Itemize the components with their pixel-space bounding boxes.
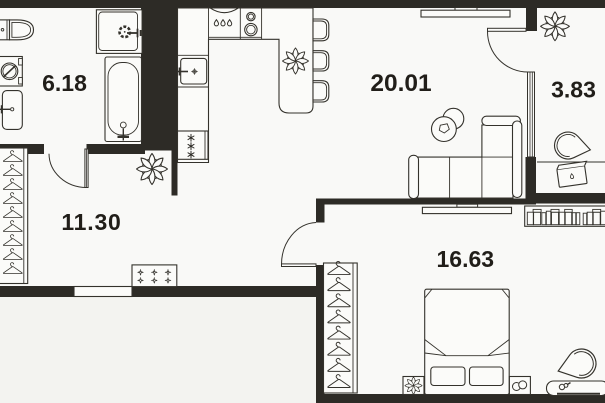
svg-text:6.18: 6.18 <box>42 70 87 96</box>
svg-text:11.30: 11.30 <box>61 209 121 235</box>
svg-text:20.01: 20.01 <box>370 70 431 97</box>
svg-text:16.63: 16.63 <box>437 246 495 272</box>
svg-text:3.83: 3.83 <box>551 77 596 103</box>
